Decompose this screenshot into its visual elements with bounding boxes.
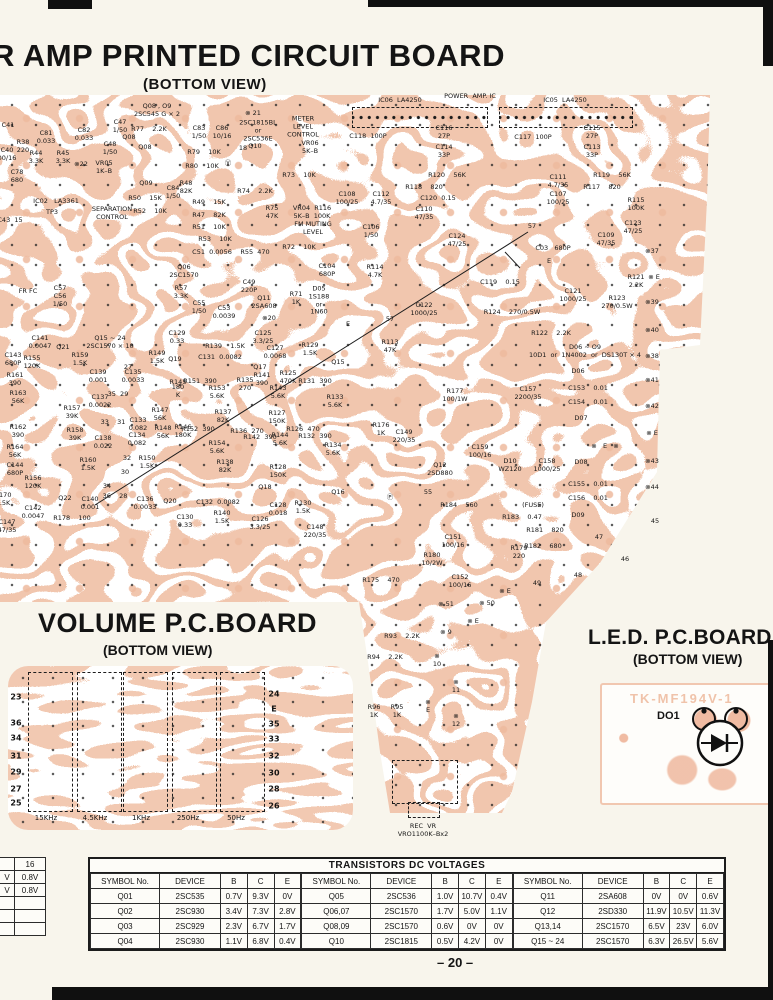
table-row: Q112SA6080V0V0.6V: [513, 889, 723, 904]
table-cell: 6.7V: [247, 919, 274, 934]
led-diode-symbol: [674, 697, 766, 777]
table-cell: Q08,09: [302, 919, 371, 934]
table-cell: 0.8V: [15, 871, 46, 884]
table-cell: 0V: [274, 889, 301, 904]
table-cell: 9.3V: [247, 889, 274, 904]
dc-voltage-table-group: SYMBOL No.DEVICEBCEQ012SC5350.7V9.3V0VQ0…: [90, 873, 301, 949]
table-cell: 16: [15, 858, 46, 871]
volume-section-outline: [220, 672, 265, 812]
volume-section-outline: [28, 672, 73, 812]
table-cell: 6.3V: [643, 934, 670, 949]
table-cell: [15, 910, 46, 923]
table-cell: 1.0V: [432, 889, 459, 904]
table-cell: Q05: [302, 889, 371, 904]
table-cell: 0.6V: [697, 889, 724, 904]
led-board-title: L.E.D. P.C.BOARD: [588, 626, 772, 650]
table-header-cell: E: [697, 874, 724, 889]
table-cell: 2.3V: [220, 919, 247, 934]
table-header-cell: E: [485, 874, 512, 889]
table-cell: 0.4V: [274, 934, 301, 949]
table-row: Q032SC9292.3V6.7V1.7V: [91, 919, 301, 934]
table-header-cell: B: [432, 874, 459, 889]
table-cell: Q06,07: [302, 904, 371, 919]
left-partial-table: 16V0.8VV0.8V: [0, 857, 46, 936]
table-cell: 10.7V: [459, 889, 486, 904]
table-row: Q012SC5350.7V9.3V0V: [91, 889, 301, 904]
table-row: Q052SC5361.0V10.7V0.4V: [302, 889, 512, 904]
table-cell: 2SD330: [582, 904, 643, 919]
table-cell: 2SC535: [160, 889, 221, 904]
table-cell: Q11: [513, 889, 582, 904]
table-cell: 6.5V: [643, 919, 670, 934]
table-row: Q122SD33011.9V10.5V11.3V: [513, 904, 723, 919]
table-cell: 0.6V: [432, 919, 459, 934]
table-cell: 2SC1570: [371, 919, 432, 934]
volume-board-title: VOLUME P.C.BOARD: [38, 608, 317, 639]
table-row: Q042SC9301.1V6.8V0.4V: [91, 934, 301, 949]
table-row: Q13,142SC15706.5V23V6.0V: [513, 919, 723, 934]
page-number: – 20 –: [437, 955, 473, 970]
table-header-cell: B: [643, 874, 670, 889]
table-cell: 2SA608: [582, 889, 643, 904]
table-row: [0, 910, 46, 923]
table-cell: 0.8V: [15, 884, 46, 897]
table-cell: Q02: [91, 904, 160, 919]
table-cell: Q12: [513, 904, 582, 919]
table-cell: 0.5V: [432, 934, 459, 949]
service-manual-page: R AMP PRINTED CIRCUIT BOARD (BOTTOM VIEW…: [0, 0, 773, 1000]
table-cell: 11.9V: [643, 904, 670, 919]
table-cell: V: [0, 871, 15, 884]
table-header-cell: SYMBOL No.: [513, 874, 582, 889]
table-cell: [0, 858, 15, 871]
table-header-cell: C: [459, 874, 486, 889]
table-header-cell: B: [220, 874, 247, 889]
table-cell: 0V: [485, 919, 512, 934]
table-cell: [0, 923, 15, 936]
table-row: Q022SC9303.4V7.3V2.8V: [91, 904, 301, 919]
table-cell: 0.4V: [485, 889, 512, 904]
scan-edge-top: [368, 0, 773, 7]
table-cell: 5.0V: [459, 904, 486, 919]
table-header-cell: DEVICE: [371, 874, 432, 889]
dc-voltages-table-groups: SYMBOL No.DEVICEBCEQ012SC5350.7V9.3V0VQ0…: [90, 873, 724, 949]
table-cell: 5.6V: [697, 934, 724, 949]
scan-edge-right-top: [763, 0, 773, 66]
table-cell: 3.4V: [220, 904, 247, 919]
scan-edge-right-bottom: [768, 640, 773, 1000]
table-cell: Q15 ~ 24: [513, 934, 582, 949]
table-cell: 10.5V: [670, 904, 697, 919]
table-cell: 2SC1570: [582, 919, 643, 934]
table-cell: 2SC929: [160, 919, 221, 934]
table-cell: 0V: [485, 934, 512, 949]
dc-voltage-table-group: SYMBOL No.DEVICEBCEQ052SC5361.0V10.7V0.4…: [301, 873, 512, 949]
linework-overlay: [0, 0, 773, 1000]
table-cell: [15, 897, 46, 910]
led-pcb-artwork: TK-MF194V-1 DO1: [600, 683, 771, 805]
volume-section-outline: [77, 672, 122, 812]
table-cell: V: [0, 884, 15, 897]
dc-voltages-table-title: TRANSISTORS DC VOLTAGES: [90, 859, 724, 873]
table-cell: 23V: [670, 919, 697, 934]
table-cell: 2SC1570: [582, 934, 643, 949]
table-cell: 2SC536: [371, 889, 432, 904]
table-row: 16: [0, 858, 46, 871]
table-cell: [0, 910, 15, 923]
table-row: V0.8V: [0, 884, 46, 897]
table-cell: Q01: [91, 889, 160, 904]
table-cell: [0, 897, 15, 910]
scan-edge-bottom: [52, 987, 773, 1000]
table-header-cell: SYMBOL No.: [91, 874, 160, 889]
table-row: Q06,072SC15701.7V5.0V1.1V: [302, 904, 512, 919]
table-row: Q08,092SC15700.6V0V0V: [302, 919, 512, 934]
table-header-cell: DEVICE: [160, 874, 221, 889]
table-header-cell: C: [670, 874, 697, 889]
table-row: [0, 923, 46, 936]
table-cell: 4.2V: [459, 934, 486, 949]
volume-section-outline: [123, 672, 168, 812]
volume-board-subtitle: (BOTTOM VIEW): [103, 642, 212, 658]
table-row: [0, 897, 46, 910]
table-cell: 1.7V: [432, 904, 459, 919]
table-cell: 1.1V: [485, 904, 512, 919]
table-cell: 2.8V: [274, 904, 301, 919]
table-row: V0.8V: [0, 871, 46, 884]
table-cell: 1.7V: [274, 919, 301, 934]
table-cell: 2SC1815: [371, 934, 432, 949]
table-header-cell: C: [247, 874, 274, 889]
table-cell: 26.5V: [670, 934, 697, 949]
dc-voltage-table-group: SYMBOL No.DEVICEBCEQ112SA6080V0V0.6VQ122…: [513, 873, 724, 949]
volume-section-outline: [172, 672, 217, 812]
table-cell: 2SC1570: [371, 904, 432, 919]
table-cell: Q10: [302, 934, 371, 949]
table-cell: 6.8V: [247, 934, 274, 949]
table-cell: 2SC930: [160, 934, 221, 949]
table-cell: [15, 923, 46, 936]
table-row: Q102SC18150.5V4.2V0V: [302, 934, 512, 949]
dc-voltages-table: TRANSISTORS DC VOLTAGES SYMBOL No.DEVICE…: [88, 857, 726, 951]
table-cell: Q03: [91, 919, 160, 934]
table-header-cell: SYMBOL No.: [302, 874, 371, 889]
table-cell: Q13,14: [513, 919, 582, 934]
led-board-subtitle: (BOTTOM VIEW): [633, 651, 742, 667]
table-header-cell: DEVICE: [582, 874, 643, 889]
table-cell: Q04: [91, 934, 160, 949]
table-cell: 1.1V: [220, 934, 247, 949]
table-cell: 0.7V: [220, 889, 247, 904]
table-cell: 0V: [670, 889, 697, 904]
table-cell: 2SC930: [160, 904, 221, 919]
table-cell: 0V: [643, 889, 670, 904]
table-header-cell: E: [274, 874, 301, 889]
table-cell: 0V: [459, 919, 486, 934]
table-cell: 6.0V: [697, 919, 724, 934]
table-cell: 7.3V: [247, 904, 274, 919]
scan-mark-top-left: [48, 0, 92, 9]
table-cell: 11.3V: [697, 904, 724, 919]
table-row: Q15 ~ 242SC15706.3V26.5V5.6V: [513, 934, 723, 949]
